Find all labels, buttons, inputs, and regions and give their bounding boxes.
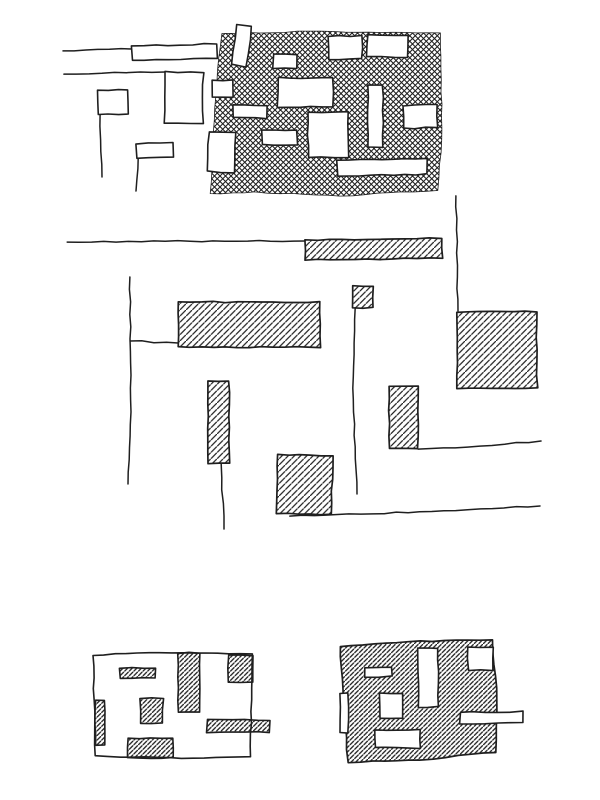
white-building <box>365 667 393 677</box>
hatched-building <box>305 238 443 260</box>
hatched-building <box>207 719 271 732</box>
street-line <box>221 464 224 529</box>
white-building <box>337 158 428 176</box>
white-building <box>273 54 297 68</box>
outlined-flag <box>98 90 129 115</box>
white-building <box>262 130 298 145</box>
white-building <box>328 36 363 60</box>
white-building <box>367 35 409 58</box>
sketch-page <box>0 0 600 800</box>
hatched-building <box>228 655 253 682</box>
top-left-outline-plan <box>63 44 217 191</box>
sketch-canvas <box>0 0 600 800</box>
flag-pole-line <box>136 158 138 191</box>
white-building <box>212 80 233 97</box>
hatched-building <box>128 738 174 759</box>
white-building <box>277 77 333 107</box>
top-figure-ground-block <box>207 25 442 197</box>
hatched-building <box>178 301 321 347</box>
white-building <box>307 112 348 158</box>
flag-pole-line <box>100 114 102 177</box>
bottom-left-figure-plan <box>93 652 270 758</box>
outlined-flag <box>136 143 174 159</box>
bottom-right-ground-plan <box>340 640 523 763</box>
hatched-building <box>140 698 164 724</box>
white-building <box>403 105 438 129</box>
street-line <box>64 72 165 74</box>
hatched-building <box>208 381 230 464</box>
hatched-building <box>457 311 538 389</box>
white-building <box>207 132 236 173</box>
street-line <box>63 49 132 51</box>
outlined-block <box>164 71 204 123</box>
white-building <box>368 85 384 147</box>
hatched-building <box>95 700 105 745</box>
white-building <box>418 648 439 708</box>
hatched-building <box>276 454 333 514</box>
white-building <box>467 647 493 671</box>
hatched-building <box>119 668 155 679</box>
street-line <box>67 241 305 243</box>
hatched-building <box>389 386 419 449</box>
hatched-building <box>178 652 200 712</box>
white-building <box>233 105 267 119</box>
street-line <box>418 441 541 449</box>
street-line <box>456 196 458 311</box>
street-line <box>353 308 357 494</box>
white-building <box>375 730 421 749</box>
white-building <box>379 693 402 718</box>
street-line <box>128 277 131 484</box>
hatched-building <box>353 286 374 309</box>
outlined-bar <box>131 44 217 61</box>
white-building <box>340 693 349 733</box>
middle-street-plan <box>67 196 541 529</box>
white-building <box>460 711 523 724</box>
street-line <box>130 341 178 343</box>
